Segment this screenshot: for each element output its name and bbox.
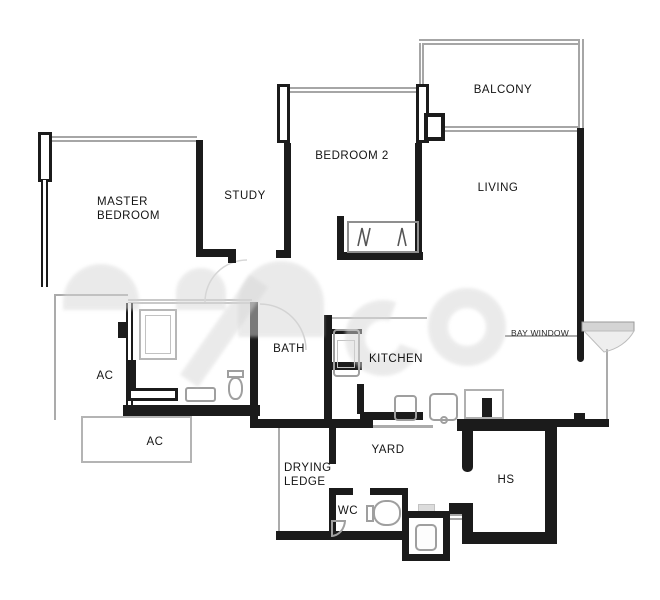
yard-top-line bbox=[373, 425, 433, 428]
hs-wall-right bbox=[545, 419, 557, 544]
room-label-hs: HS bbox=[498, 474, 515, 488]
bed-pillow-marks bbox=[352, 226, 416, 248]
chute-basin bbox=[415, 524, 437, 551]
room-label-yard: YARD bbox=[371, 444, 404, 458]
room-label-drying-ledge: DRYING LEDGE bbox=[284, 462, 332, 489]
window-post-study-bedroom2 bbox=[277, 84, 290, 143]
wall-study-bedroom2 bbox=[284, 143, 291, 252]
balcony-outline-top bbox=[419, 39, 584, 45]
wall-master-study-foot-tick bbox=[228, 255, 236, 263]
fridge-symbol bbox=[464, 389, 504, 419]
hs-wall-left-lower bbox=[462, 503, 473, 543]
hs-wall-left-tab bbox=[449, 503, 463, 514]
wall-master-left bbox=[41, 180, 48, 287]
room-label-kitchen: KITCHEN bbox=[369, 353, 423, 367]
watermark-shape-dome2 bbox=[176, 268, 226, 310]
wall-wc-left-stub bbox=[329, 488, 353, 495]
entry-corridor-line bbox=[606, 349, 608, 421]
room-label-bath: BATH bbox=[273, 343, 305, 357]
window-line-master bbox=[52, 136, 197, 142]
room-label-master-bedroom: MASTER BEDROOM bbox=[97, 196, 160, 223]
hs-wall-left-upper bbox=[462, 419, 473, 472]
bath-toilet-bowl bbox=[228, 377, 243, 400]
window-line-bedroom2 bbox=[290, 87, 417, 93]
ac-ledge-upper-line-left bbox=[54, 294, 56, 420]
chute-hs-connector bbox=[448, 514, 462, 520]
room-label-bedroom-2: BEDROOM 2 bbox=[315, 150, 389, 164]
floor-plan: MASTER BEDROOM STUDY BEDROOM 2 BALCONY L… bbox=[0, 0, 660, 600]
room-label-balcony: BALCONY bbox=[474, 84, 532, 98]
wall-study-bedroom2-foot bbox=[276, 250, 291, 258]
room-label-study: STUDY bbox=[224, 190, 265, 204]
window-line-balcony-living bbox=[434, 126, 580, 132]
wall-bedroom2-bottom-stub bbox=[337, 216, 344, 256]
watermark-shape-dome1 bbox=[63, 264, 139, 310]
wc-toilet-tank bbox=[366, 505, 374, 522]
room-label-ac-upper: AC bbox=[97, 370, 114, 384]
kitchen-counter-stub bbox=[357, 384, 364, 414]
room-label-ac-lower: AC bbox=[147, 436, 164, 450]
balcony-outline-left bbox=[419, 43, 424, 89]
wall-bath-left-nub bbox=[118, 322, 126, 338]
drying-ledge-line-left bbox=[278, 427, 280, 533]
column-balcony-corner bbox=[424, 113, 445, 141]
ac-ledge-lower-outline bbox=[81, 416, 192, 463]
window-frame-master-left bbox=[38, 132, 52, 182]
bath-vanity-counter bbox=[128, 388, 178, 401]
bath-sink-symbol bbox=[185, 387, 216, 402]
shower-inner-line bbox=[145, 315, 171, 354]
wall-bedroom2-bottom bbox=[337, 252, 423, 260]
hob-symbol bbox=[394, 395, 417, 421]
washing-machine-tap bbox=[440, 416, 448, 424]
watermark-shape-o bbox=[428, 288, 506, 366]
hs-wall-bottom bbox=[462, 532, 557, 544]
wc-toilet-bowl bbox=[373, 500, 401, 526]
room-label-bay-window: BAY WINDOW bbox=[511, 328, 569, 338]
wall-wc-left-upper bbox=[329, 428, 336, 464]
room-label-living: LIVING bbox=[478, 182, 519, 196]
wall-master-study bbox=[196, 140, 203, 252]
balcony-outline-right bbox=[578, 39, 584, 133]
entry-wall bbox=[553, 419, 609, 427]
main-entrance-door bbox=[580, 316, 642, 358]
wall-bath-bottom bbox=[123, 405, 260, 416]
entry-wall-notch bbox=[574, 413, 585, 419]
wall-kitchen-bottom bbox=[257, 419, 373, 428]
room-label-wc: WC bbox=[338, 505, 358, 519]
